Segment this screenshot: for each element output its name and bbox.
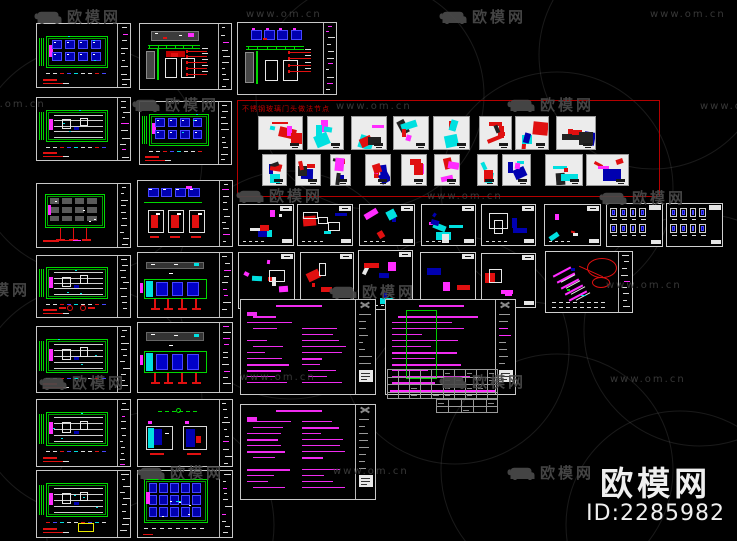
mark — [361, 481, 370, 482]
mark — [146, 332, 204, 341]
mark — [262, 230, 273, 238]
mark — [438, 241, 441, 242]
mark — [120, 361, 125, 362]
mark — [193, 118, 203, 127]
mark — [187, 282, 198, 296]
mark — [193, 411, 197, 412]
mark — [123, 518, 130, 519]
mark — [392, 376, 470, 377]
sofa-icon — [131, 98, 161, 112]
mark — [224, 295, 228, 296]
mark — [121, 349, 127, 350]
mark — [195, 120, 197, 121]
mark — [632, 235, 637, 236]
mark — [327, 83, 334, 84]
mark — [187, 354, 198, 369]
mark — [649, 205, 661, 210]
mark — [610, 208, 617, 217]
mark — [398, 369, 399, 399]
mark — [83, 210, 85, 211]
mark — [361, 478, 370, 479]
mark — [243, 304, 246, 305]
mark — [305, 49, 311, 50]
watermark-brand-text: 欧模网 — [170, 462, 224, 483]
mark — [499, 335, 511, 336]
mark — [370, 241, 373, 242]
mark — [191, 151, 195, 152]
mark — [41, 485, 42, 515]
mark — [157, 120, 159, 121]
mark — [43, 309, 57, 311]
mark — [302, 421, 332, 422]
mark — [180, 118, 190, 127]
mark — [261, 241, 264, 242]
mark — [222, 256, 227, 257]
mark — [53, 522, 57, 523]
mark — [149, 46, 150, 49]
mark — [43, 152, 57, 154]
mark — [165, 58, 177, 78]
mark — [54, 500, 102, 501]
mark — [54, 42, 56, 43]
mark — [121, 205, 126, 206]
mark — [456, 380, 462, 381]
mark — [504, 241, 507, 242]
mark — [581, 295, 586, 296]
mark — [444, 241, 447, 242]
mark — [171, 53, 179, 56]
mark — [302, 439, 343, 440]
mark — [67, 305, 73, 311]
watermark-url-text: www.om.cn — [0, 99, 46, 110]
mark — [186, 73, 188, 76]
mark — [159, 483, 168, 493]
mark — [385, 209, 397, 222]
mark — [88, 73, 92, 74]
mark — [711, 240, 721, 244]
mark — [392, 364, 461, 366]
mark — [223, 449, 229, 450]
mark — [54, 435, 102, 436]
mark — [612, 219, 617, 220]
mark — [144, 351, 206, 372]
title-block — [618, 252, 632, 313]
mark — [222, 62, 229, 63]
mark — [54, 126, 102, 127]
mark — [225, 436, 229, 437]
mark — [359, 433, 368, 434]
mark — [302, 216, 316, 227]
mark — [46, 304, 50, 305]
mark — [60, 147, 64, 148]
mark — [571, 268, 575, 271]
mark — [74, 495, 76, 496]
mark — [279, 214, 282, 217]
mark — [43, 83, 63, 84]
mark — [184, 528, 188, 529]
mark — [500, 302, 510, 309]
mark — [148, 210, 164, 233]
mark — [63, 387, 69, 388]
mark — [49, 349, 53, 361]
mark — [53, 73, 57, 74]
mark — [406, 310, 437, 379]
mark — [601, 302, 605, 303]
mark — [121, 130, 128, 131]
mark — [419, 305, 463, 307]
mark — [302, 475, 324, 476]
mark — [223, 383, 231, 384]
mark — [312, 283, 315, 287]
mark — [54, 294, 102, 295]
mark — [463, 410, 469, 411]
mark — [165, 433, 169, 434]
mark — [145, 160, 165, 161]
mark — [74, 522, 78, 523]
mark — [74, 502, 79, 505]
mark — [186, 51, 207, 52]
mark — [621, 275, 628, 276]
mark — [182, 132, 184, 133]
mark — [443, 369, 444, 399]
mark — [165, 160, 171, 161]
mark — [555, 214, 559, 220]
mark — [169, 273, 173, 274]
mark — [122, 117, 125, 118]
mark — [302, 241, 305, 242]
mark — [54, 512, 102, 513]
mark — [454, 369, 455, 399]
mark — [561, 241, 564, 242]
mark — [46, 412, 108, 446]
mark — [170, 120, 172, 121]
mark — [155, 33, 158, 34]
mark — [198, 151, 202, 152]
mark — [159, 495, 168, 505]
mark — [359, 370, 373, 382]
mark — [53, 304, 57, 305]
mark — [363, 305, 366, 306]
mark — [429, 222, 433, 225]
mark — [54, 488, 102, 489]
mark — [221, 159, 224, 160]
mark — [305, 68, 311, 69]
mark — [701, 235, 706, 236]
mark — [43, 461, 63, 462]
mark — [567, 241, 570, 242]
mark — [553, 266, 572, 277]
watermark-url-text: www.om.cn — [333, 466, 409, 477]
mark — [149, 189, 152, 190]
mark — [392, 328, 464, 329]
mark — [121, 48, 127, 49]
detail-section-frame: 不锈钢玻璃门头做法节点 — [237, 100, 660, 197]
title-block — [219, 253, 232, 318]
mark — [246, 46, 303, 47]
mark — [690, 208, 697, 217]
mark — [401, 303, 411, 307]
mark — [672, 226, 675, 231]
mark — [247, 475, 274, 476]
mark — [682, 235, 687, 236]
title-block — [219, 400, 232, 467]
mark — [288, 64, 290, 67]
mark — [641, 219, 646, 220]
mark — [54, 494, 102, 495]
watermark-logo: 欧模网 — [328, 281, 416, 302]
mark — [243, 271, 249, 277]
mark — [326, 69, 329, 70]
mark — [193, 130, 203, 139]
mark — [420, 369, 421, 399]
mark — [179, 35, 182, 36]
mark — [43, 414, 44, 444]
title-block — [219, 181, 232, 247]
mark — [359, 328, 366, 329]
mark — [499, 342, 506, 343]
mark — [283, 208, 289, 209]
mark — [171, 215, 178, 228]
mark — [74, 73, 78, 74]
mark — [399, 252, 411, 257]
mark — [359, 440, 368, 441]
mark — [270, 210, 275, 217]
mark — [122, 157, 129, 158]
mark — [121, 374, 126, 375]
mark — [166, 46, 167, 49]
mark — [202, 59, 208, 60]
mark — [60, 451, 64, 452]
mark — [75, 198, 85, 204]
mark — [189, 210, 205, 233]
cad-sheet-sch1 — [606, 203, 663, 247]
mark — [249, 304, 252, 305]
cad-sheet-c2r1 — [139, 23, 232, 90]
mark — [264, 30, 275, 39]
mark — [363, 207, 378, 219]
mark — [449, 225, 462, 228]
mark — [78, 40, 88, 49]
mark — [302, 433, 321, 434]
mark — [195, 132, 197, 133]
mark — [186, 429, 196, 447]
mark — [392, 370, 428, 371]
mark — [288, 57, 290, 60]
mark — [258, 231, 267, 237]
mark — [65, 52, 75, 61]
watermark-circle — [341, 236, 569, 464]
cad-sheet-c2r5 — [137, 322, 233, 393]
mark — [41, 112, 42, 140]
mark — [94, 60, 96, 61]
cad-sheet-c1r4 — [36, 255, 131, 318]
mark — [121, 66, 128, 67]
watermark-circle — [176, 171, 404, 399]
mark — [283, 60, 298, 82]
mark — [222, 111, 228, 112]
mark — [559, 302, 563, 303]
mark — [202, 71, 208, 72]
mark — [123, 486, 130, 487]
mark — [467, 388, 473, 389]
mark — [121, 277, 126, 278]
mark — [158, 46, 159, 49]
mark — [376, 241, 379, 242]
mark — [172, 354, 183, 369]
mark — [54, 54, 56, 55]
mark — [121, 447, 125, 448]
mark — [186, 55, 188, 58]
mark — [102, 378, 106, 379]
mark — [181, 495, 190, 505]
mark — [192, 382, 201, 384]
mark — [411, 388, 417, 389]
mark — [62, 207, 72, 213]
mark — [151, 31, 199, 41]
mark — [193, 120, 195, 121]
mark — [247, 481, 268, 482]
mark — [632, 219, 637, 220]
mark — [223, 357, 227, 358]
mark — [222, 68, 226, 69]
mark — [303, 212, 318, 219]
mark — [224, 270, 231, 271]
mark — [188, 514, 190, 515]
mark — [81, 451, 85, 452]
mark — [308, 241, 311, 242]
mark — [601, 307, 605, 308]
mark — [291, 30, 302, 39]
mark — [59, 307, 66, 309]
mark — [485, 273, 495, 283]
mark — [317, 304, 320, 305]
mark — [221, 123, 228, 124]
mark — [622, 268, 627, 269]
mark — [359, 419, 369, 420]
mark — [48, 38, 106, 67]
mark — [253, 328, 277, 329]
cad-sheet-c2r2 — [139, 101, 232, 165]
mark — [122, 79, 130, 80]
sofa-icon — [438, 375, 468, 389]
mark — [223, 147, 228, 148]
mark — [95, 304, 99, 305]
mark — [498, 303, 501, 304]
mark — [121, 421, 126, 422]
mark — [223, 302, 231, 303]
mark — [54, 356, 102, 357]
mark — [624, 261, 630, 262]
mark — [86, 228, 87, 238]
mark — [359, 461, 365, 462]
title-block — [495, 300, 515, 395]
mark — [341, 239, 351, 243]
mark — [89, 221, 91, 222]
mark — [88, 307, 95, 309]
mark — [74, 285, 79, 288]
mark — [427, 268, 441, 275]
mark — [639, 224, 646, 233]
mark — [501, 376, 510, 377]
mark — [302, 364, 320, 365]
mark — [277, 30, 288, 39]
mark — [462, 254, 474, 259]
title-block — [117, 98, 130, 161]
mark — [202, 65, 208, 66]
sofa-icon — [328, 285, 358, 299]
mark — [39, 38, 40, 67]
mark — [54, 278, 102, 279]
mark — [121, 212, 126, 213]
mark — [552, 307, 556, 308]
mark — [79, 110, 81, 111]
mark — [144, 279, 206, 299]
mark — [80, 492, 87, 502]
mark — [566, 302, 570, 303]
mark — [176, 528, 180, 529]
mark — [161, 188, 172, 197]
mark — [189, 505, 191, 506]
mark — [192, 46, 193, 49]
mark — [145, 156, 159, 158]
mark — [699, 208, 706, 217]
watermark-url-text: www.om.cn — [700, 101, 737, 112]
watermark-brand-text: 欧模网 — [0, 279, 30, 300]
mark — [224, 429, 227, 430]
mark — [701, 210, 704, 215]
mark — [54, 115, 102, 116]
mark — [222, 282, 228, 283]
mark — [168, 528, 172, 529]
mark — [121, 193, 124, 194]
mark — [74, 431, 79, 434]
mark — [123, 112, 130, 113]
mark — [122, 330, 127, 331]
mark — [49, 422, 53, 434]
mark — [120, 232, 123, 233]
mark — [177, 151, 181, 152]
mark — [253, 487, 285, 488]
watermark-url-text: www.om.cn — [610, 374, 686, 385]
mark — [223, 532, 228, 533]
mark — [467, 373, 473, 374]
cad-sheet-c3r1 — [237, 22, 337, 95]
mark — [362, 264, 370, 275]
mark — [165, 411, 169, 412]
mark — [121, 428, 127, 429]
title-block — [323, 23, 336, 95]
site-logo-text: 欧模网 — [586, 467, 725, 501]
mark — [409, 369, 410, 399]
mark — [150, 236, 160, 238]
mark — [425, 304, 428, 305]
mark — [166, 51, 184, 57]
mark — [142, 116, 143, 144]
mark — [623, 293, 629, 294]
mark — [183, 426, 207, 450]
mark — [196, 436, 201, 443]
mark — [692, 235, 697, 236]
mark — [692, 219, 697, 220]
mark — [612, 226, 615, 231]
mark — [163, 37, 167, 39]
mark — [195, 373, 197, 382]
mark — [75, 270, 77, 271]
mark — [587, 206, 599, 211]
watermark-layer: 欧模网www.om.cn欧模网www.om.cnwww.om.cn欧模网www.… — [0, 0, 737, 541]
mark — [411, 395, 417, 396]
mark — [465, 208, 471, 209]
